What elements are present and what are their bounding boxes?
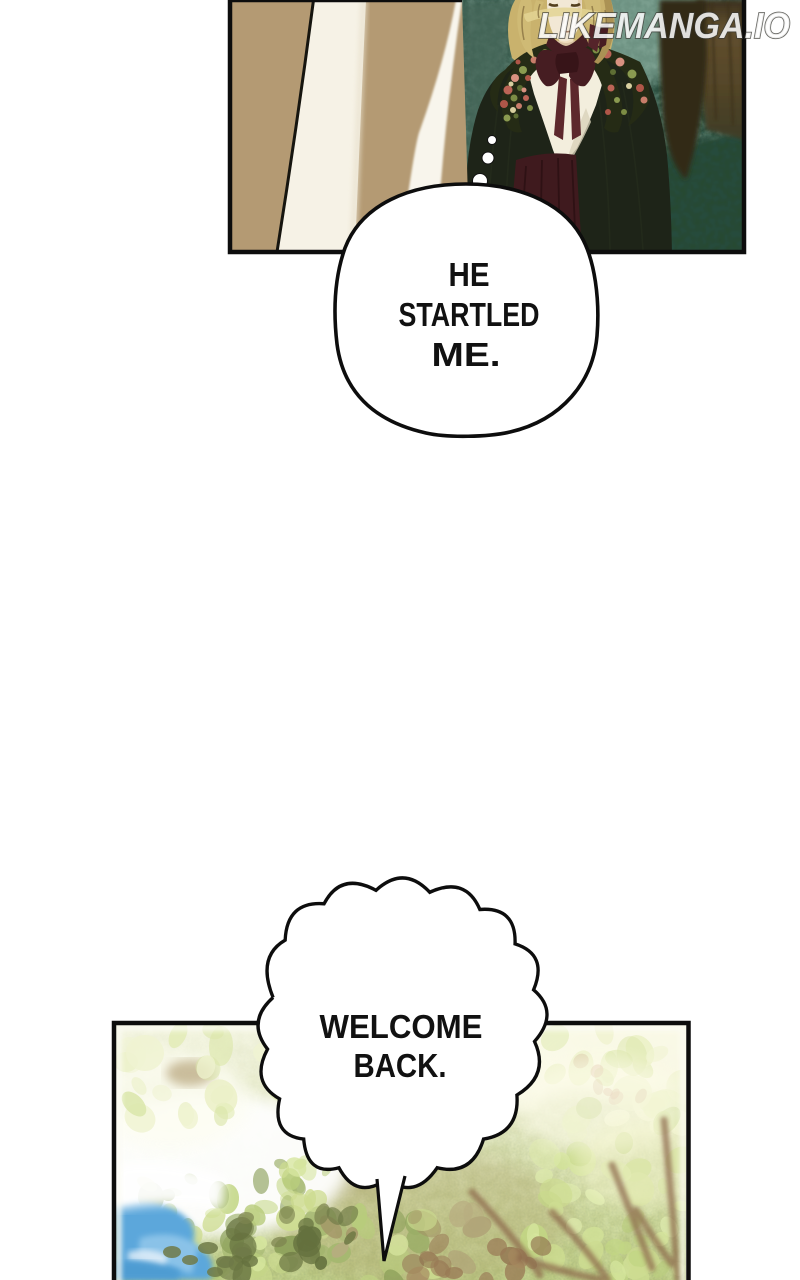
- svg-text:HE: HE: [449, 256, 490, 293]
- svg-text:WELCOME: WELCOME: [320, 1008, 483, 1045]
- svg-text:ME.: ME.: [432, 336, 501, 373]
- svg-text:LIKEMANGA.IO: LIKEMANGA.IO: [538, 5, 790, 46]
- svg-text:BACK.: BACK.: [354, 1047, 447, 1084]
- svg-text:STARTLED: STARTLED: [399, 296, 540, 333]
